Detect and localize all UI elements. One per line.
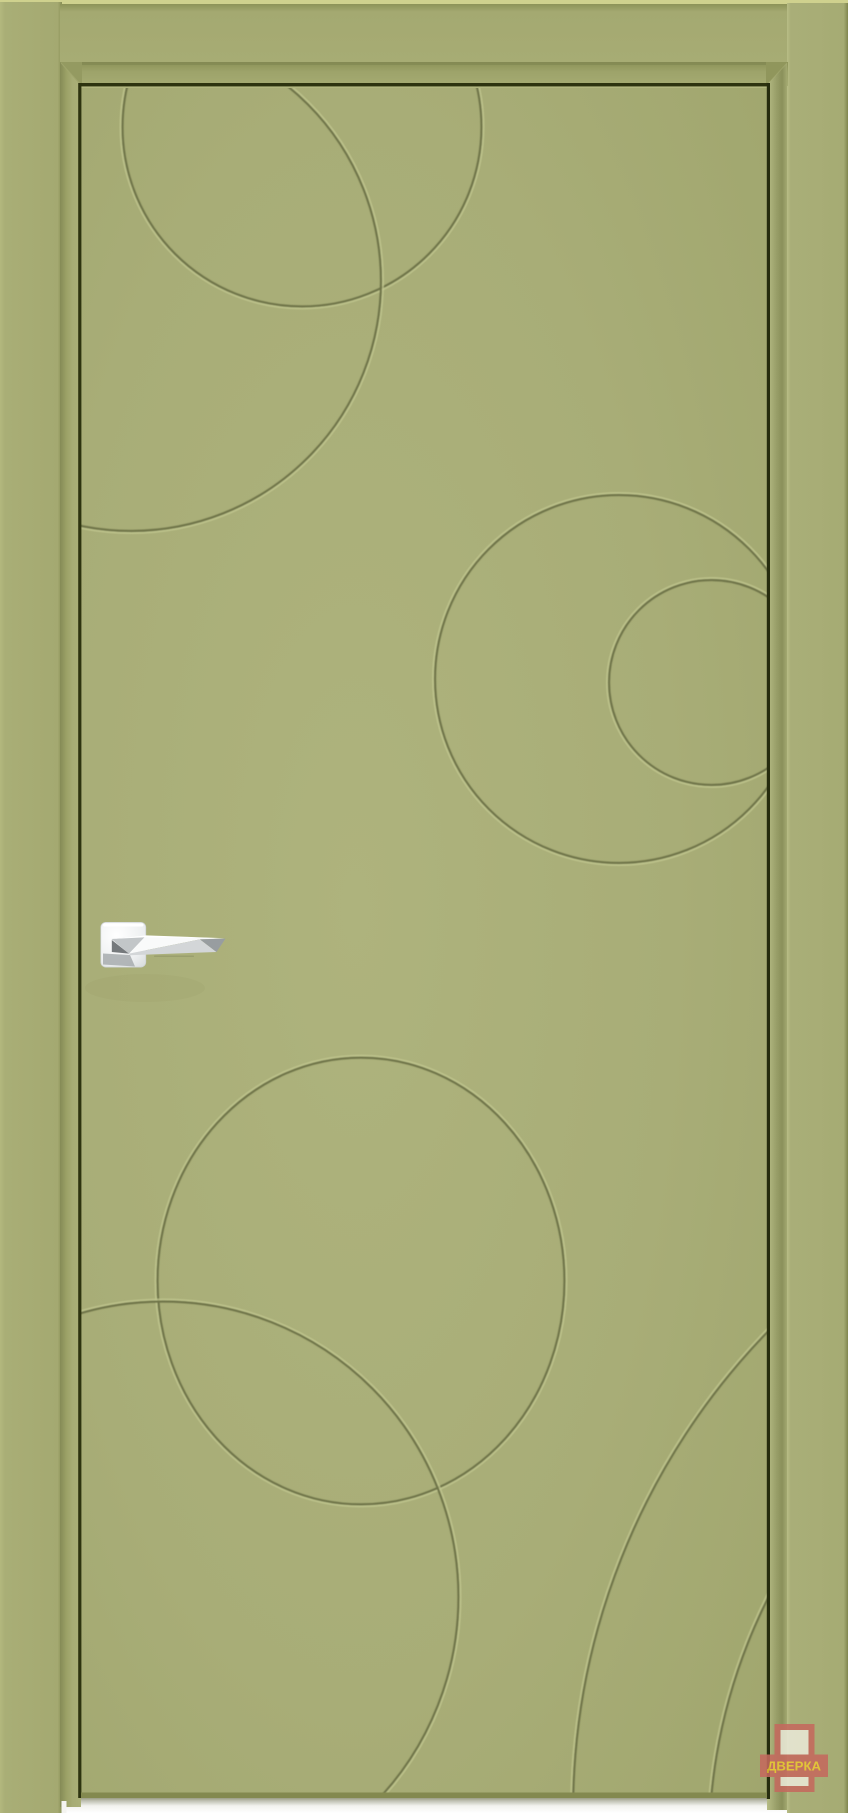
svg-text:ДВЕРКА: ДВЕРКА bbox=[767, 1759, 822, 1774]
